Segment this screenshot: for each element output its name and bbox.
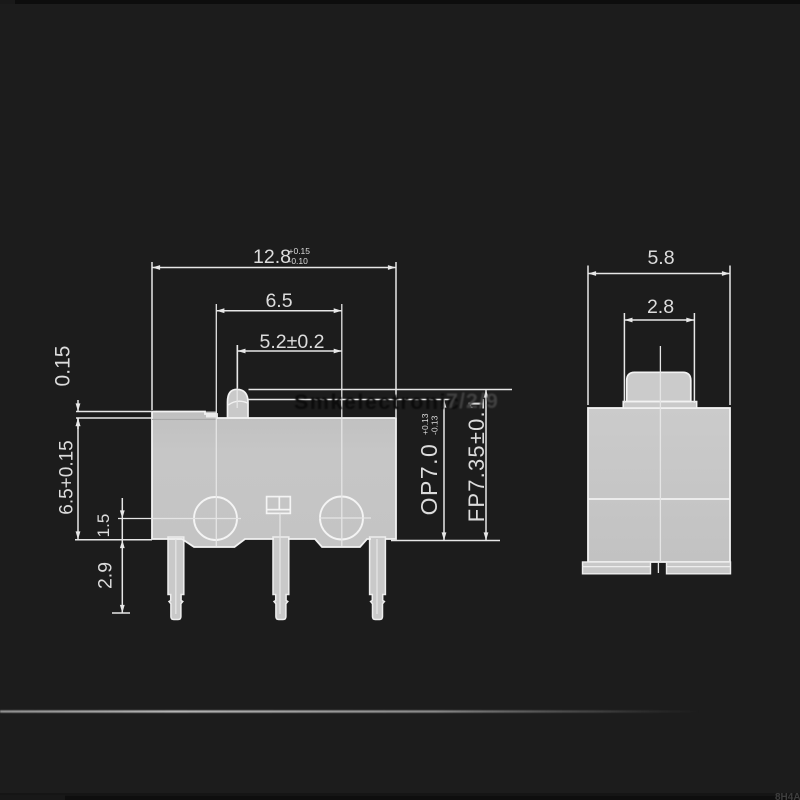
svg-text:+0.15: +0.15 xyxy=(289,246,311,256)
svg-text:2.8: 2.8 xyxy=(647,296,674,318)
svg-text:6.5: 6.5 xyxy=(265,290,292,312)
svg-text:2.9: 2.9 xyxy=(95,562,117,589)
svg-text:1.5: 1.5 xyxy=(94,514,113,538)
svg-text:+0.13: +0.13 xyxy=(420,413,430,435)
svg-text:-0.13: -0.13 xyxy=(430,415,440,435)
svg-text:5.2±0.2: 5.2±0.2 xyxy=(260,331,325,353)
svg-text:-0.10: -0.10 xyxy=(289,256,309,266)
svg-text:8H4A: 8H4A xyxy=(775,792,800,800)
svg-text:FP7.35±0.1: FP7.35±0.1 xyxy=(464,397,489,523)
svg-text:12.8: 12.8 xyxy=(253,246,291,268)
svg-text:6.5+0.15: 6.5+0.15 xyxy=(56,440,77,515)
svg-text:5.8: 5.8 xyxy=(647,247,674,269)
svg-text:7/2/9: 7/2/9 xyxy=(446,389,499,413)
svg-text:OP7.0: OP7.0 xyxy=(416,443,442,516)
svg-text:0.15: 0.15 xyxy=(52,346,75,387)
svg-text:Smkelectronic: Smkelectronic xyxy=(294,390,460,414)
